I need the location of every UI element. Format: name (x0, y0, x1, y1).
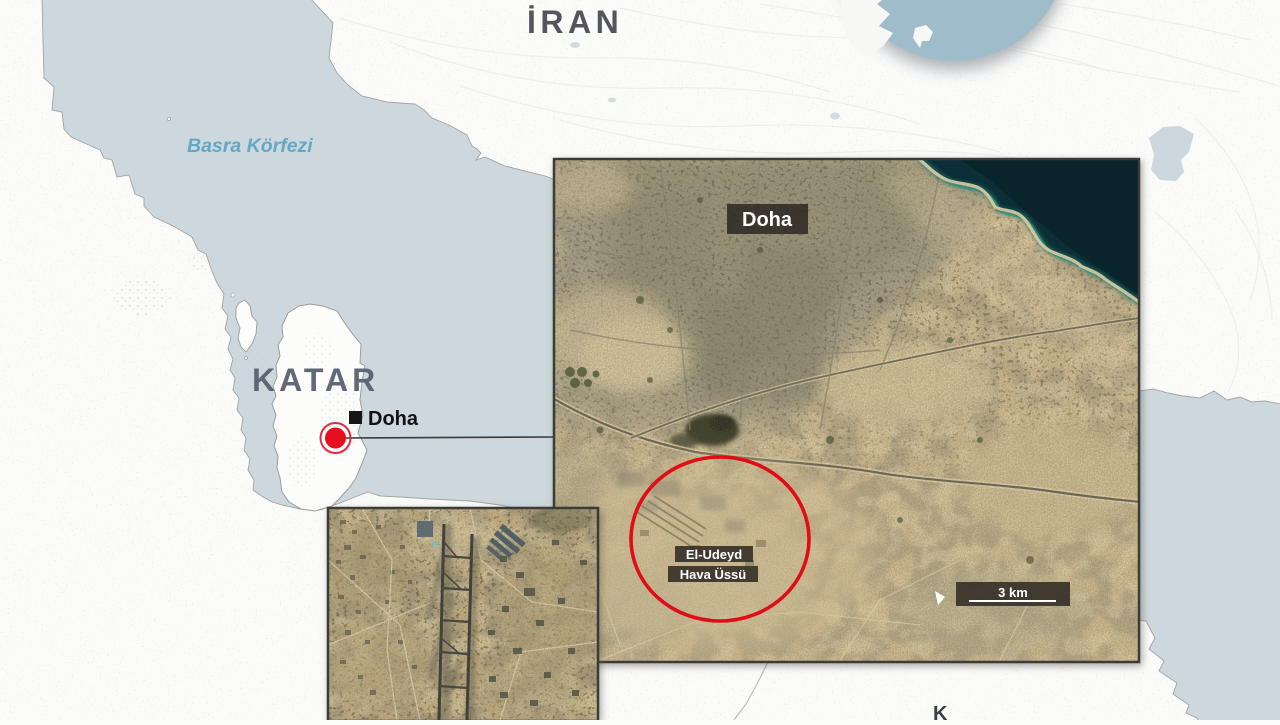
svg-text:Doha: Doha (368, 408, 419, 430)
svg-text:Doha: Doha (742, 209, 793, 231)
svg-text:Hava Üssü: Hava Üssü (680, 567, 747, 582)
svg-text:K: K (933, 703, 948, 720)
svg-text:KATAR: KATAR (252, 362, 379, 398)
svg-text:El-Udeyd: El-Udeyd (686, 547, 742, 562)
svg-text:Basra Körfezi: Basra Körfezi (187, 135, 313, 157)
svg-text:3 km: 3 km (998, 585, 1028, 600)
svg-text:İRAN: İRAN (527, 4, 623, 40)
